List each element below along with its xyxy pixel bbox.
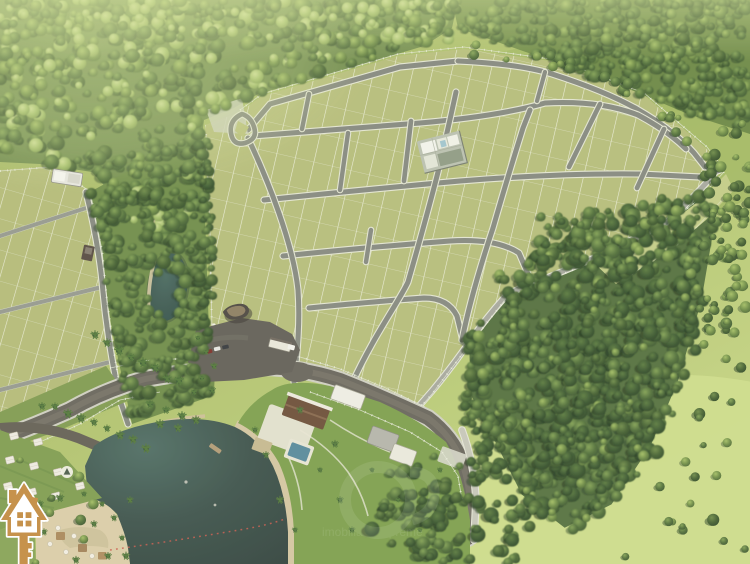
svg-text:imobiliariasupreme: imobiliariasupreme <box>322 525 423 539</box>
